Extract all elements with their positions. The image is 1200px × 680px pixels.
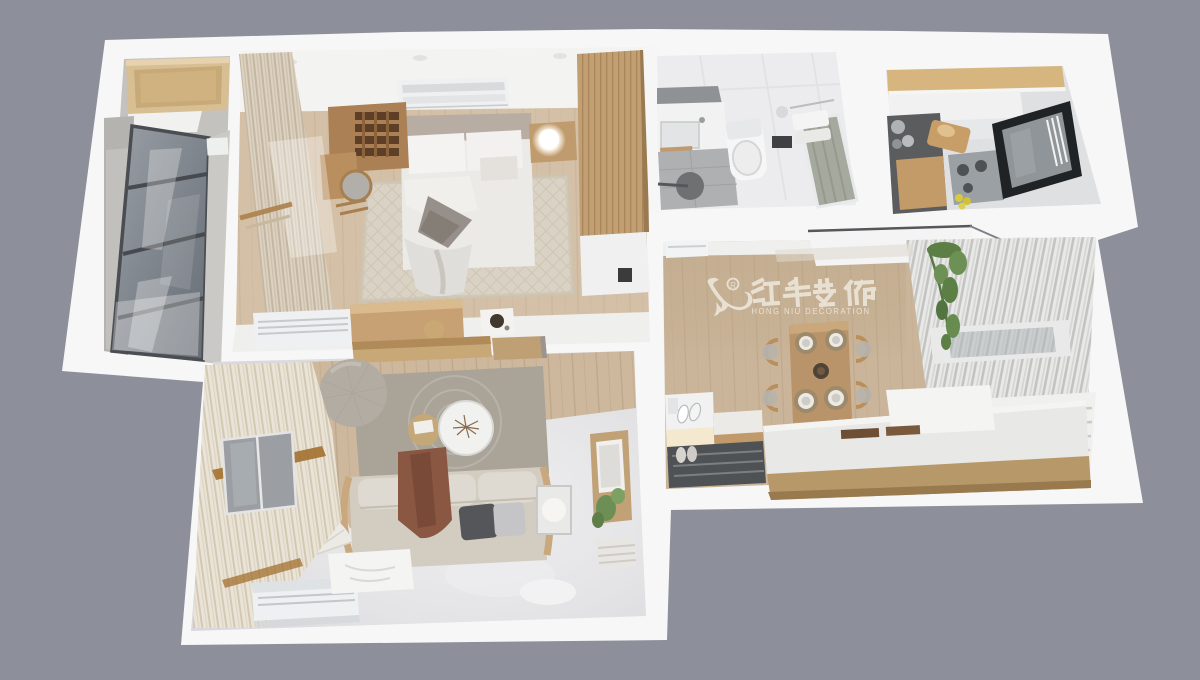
svg-text:HONG NIU DECORATION: HONG NIU DECORATION xyxy=(751,307,870,316)
svg-text:R: R xyxy=(730,281,736,290)
